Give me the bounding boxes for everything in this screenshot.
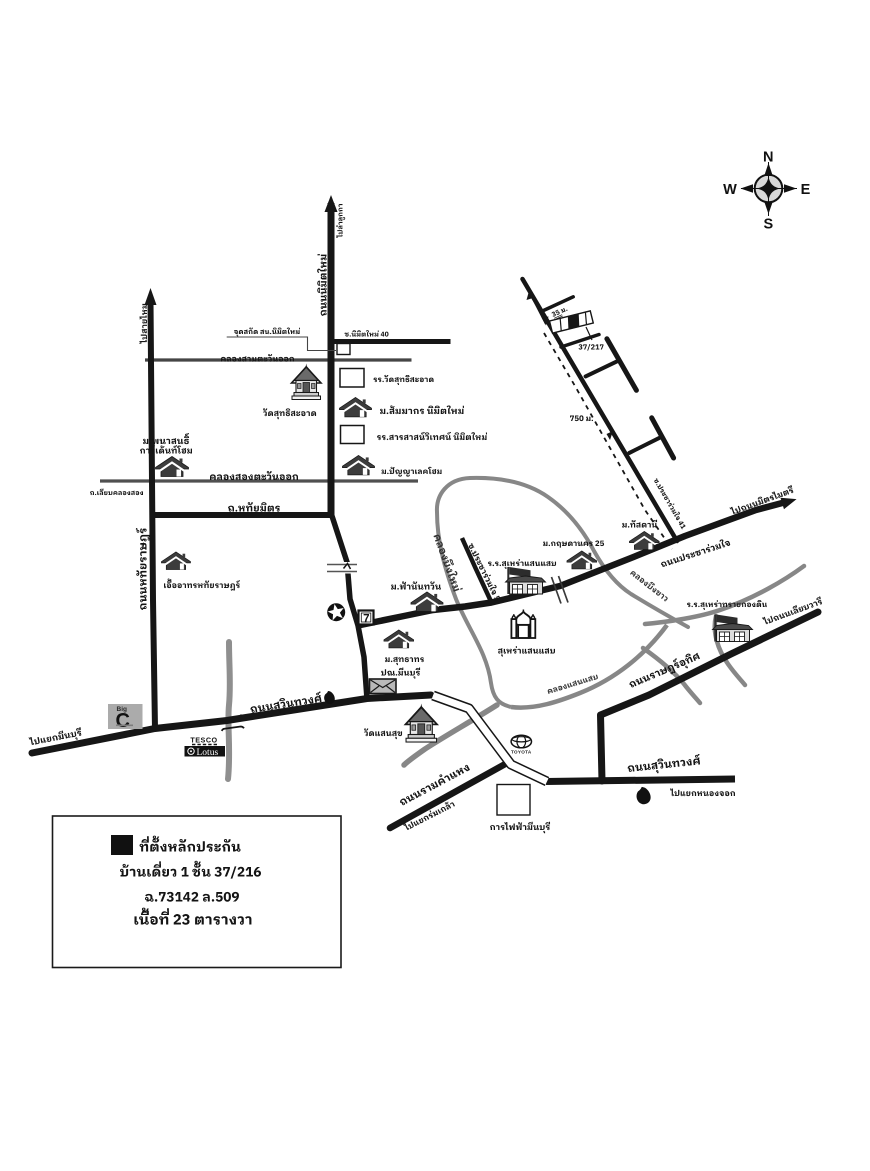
svg-text:C: C <box>116 710 130 732</box>
svg-text:N: N <box>763 150 773 166</box>
svg-text:TESCO: TESCO <box>190 736 217 745</box>
svg-text:W: W <box>723 182 737 198</box>
svg-text:S: S <box>763 217 773 233</box>
svg-text:7: 7 <box>363 613 369 625</box>
svg-text:E: E <box>801 182 811 198</box>
svg-text:Lotus: Lotus <box>197 748 219 758</box>
svg-text:TOYOTA: TOYOTA <box>511 750 532 755</box>
